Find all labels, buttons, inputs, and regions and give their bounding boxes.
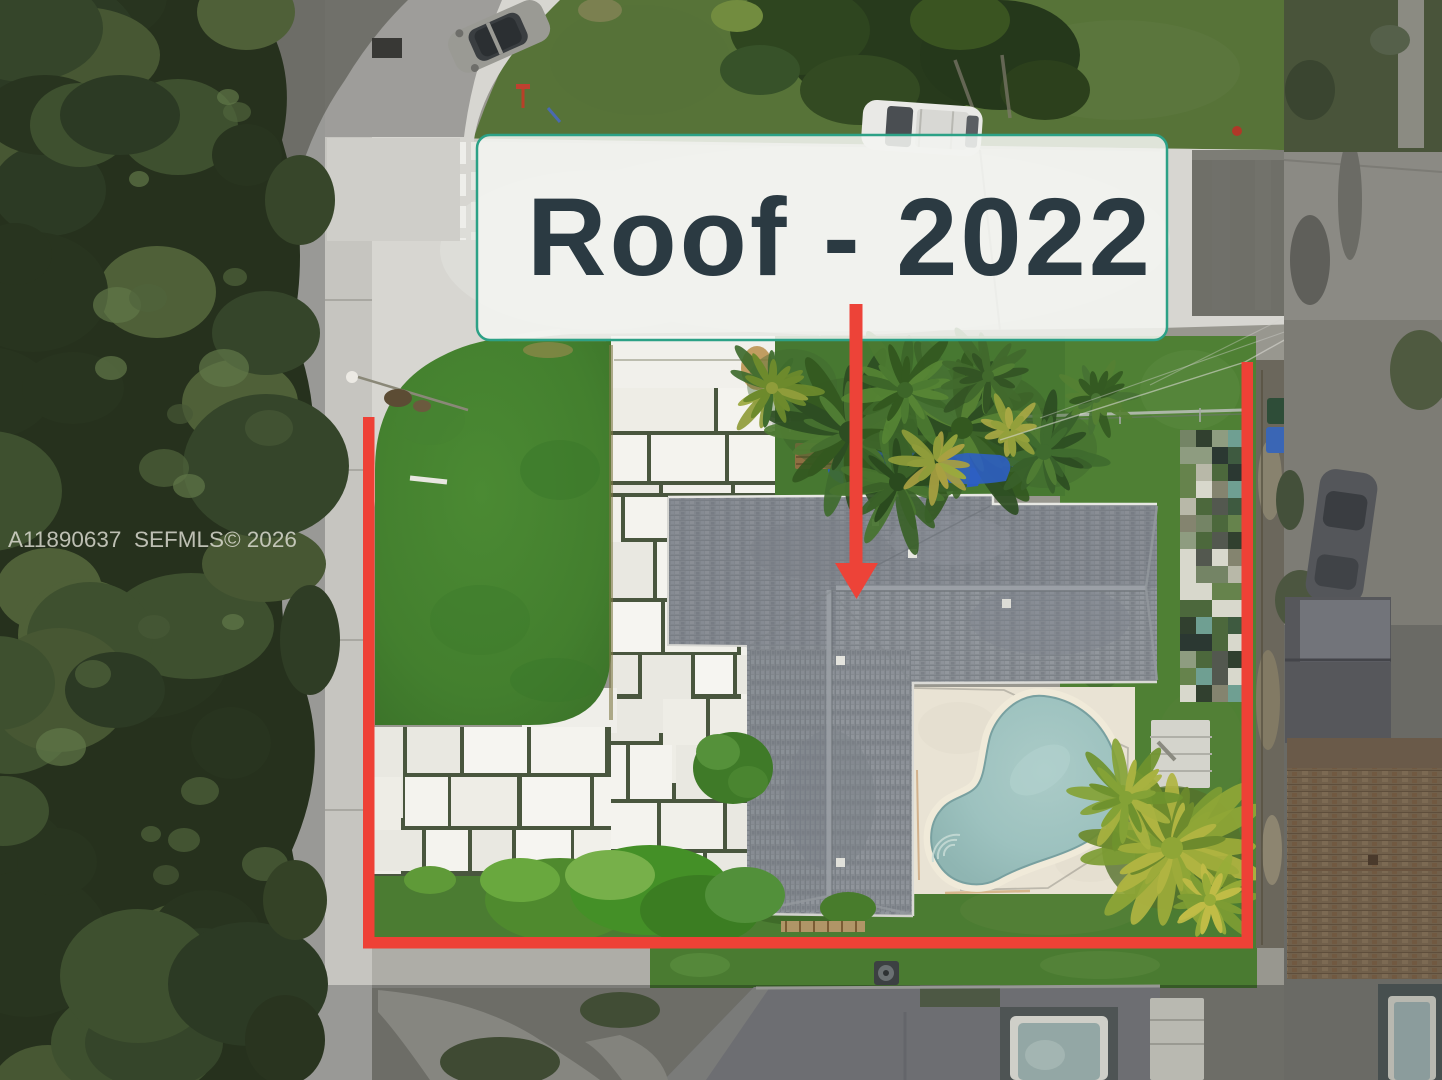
svg-text:Roof - 2022: Roof - 2022: [527, 176, 1153, 299]
svg-text:A11890637 SEFMLS© 2026: A11890637 SEFMLS© 2026: [8, 527, 297, 552]
